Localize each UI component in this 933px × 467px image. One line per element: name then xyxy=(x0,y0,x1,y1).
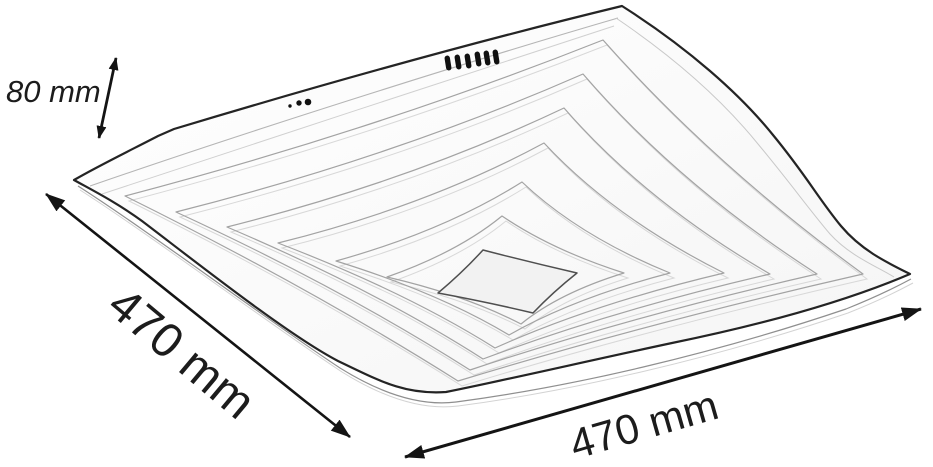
dimension-diagram: 80 mm 470 mm 470 mm xyxy=(0,0,933,467)
height-dimension-arrow xyxy=(99,58,116,138)
lamp-line-drawing xyxy=(0,0,933,467)
height-dimension-label: 80 mm xyxy=(6,76,101,107)
mounting-dot xyxy=(305,99,312,106)
mounting-dot xyxy=(288,104,291,107)
height-arrow-icon xyxy=(99,58,116,138)
mounting-dot xyxy=(296,100,301,105)
